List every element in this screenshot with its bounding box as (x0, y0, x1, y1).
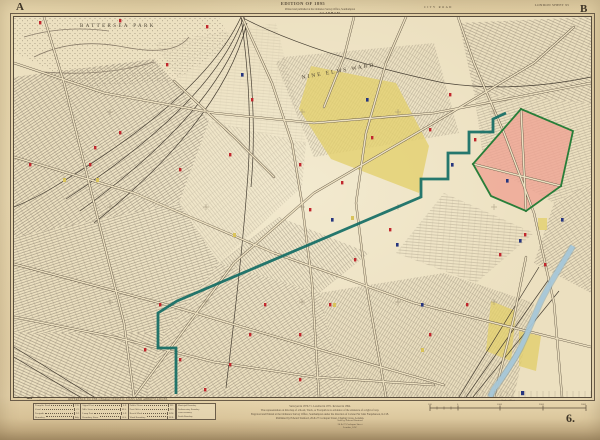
legend-code: Bdy. (73, 416, 80, 419)
map-sheet: EDITION OF 1895 Printed and published at… (0, 0, 600, 440)
legend-code: W.B. (167, 416, 174, 419)
boundary-note: Parish Boundary (177, 415, 215, 419)
corner-letter-b: B (580, 3, 587, 15)
scale-number: 500 (428, 403, 433, 406)
map-artwork: BATTERSEA PARK NINE ELMS WARD (14, 17, 591, 397)
legend-row: BoundaryBdy. (34, 415, 80, 419)
legend-group-3: Public HouseP.H. Post OfficeP.O. Bench M… (128, 404, 175, 419)
legend-leader (100, 416, 120, 417)
scale-number: 1000 (497, 403, 503, 406)
scale-bar: 500 0 1000 2000 3000 (428, 403, 588, 415)
legend-leader (144, 405, 167, 406)
legend-leader (143, 413, 166, 414)
frame-tick-ruler (14, 391, 591, 397)
publisher-line: London, S.W. (298, 426, 402, 430)
legend-leader (147, 416, 166, 417)
legend-row: Ward BoundaryW.B. (129, 415, 175, 419)
legend-group-1: Turnpike RoadT.R. CanalCl. FootpathF.P. … (34, 404, 80, 419)
legend-leader (142, 409, 167, 410)
legend-leader (94, 413, 120, 414)
district-name: CLAPHAM (300, 12, 360, 16)
edge-road-label: CITY ROAD (424, 6, 484, 9)
boundary-notes-box: Municipal Boundary Parliamentary Boundar… (176, 403, 216, 420)
legend-code: B.S. (120, 416, 126, 419)
scale-number: 2000 (539, 403, 545, 406)
scale-number: 3000 (581, 403, 587, 406)
legend-label: Boundary Stone (82, 416, 98, 419)
legend-leader (42, 409, 73, 410)
publisher-block: Sold by Edward Stanford 26 & 27 Cockspur… (298, 419, 402, 430)
corner-letter-a: A (16, 1, 24, 13)
legend-leader (94, 409, 118, 410)
legend-label: Ward Boundary (130, 416, 146, 419)
park-label: BATTERSEA PARK (80, 24, 156, 29)
legend-group-2: Signal PostS.P. Mile StoneM.S. Lamp Post… (80, 404, 127, 419)
legend-table: Turnpike RoadT.R. CanalCl. FootpathF.P. … (33, 403, 176, 420)
revision-note-line2: to December 1894. (37, 399, 81, 402)
sheet-label: LONDON SHEET 95 (523, 4, 581, 8)
legend-label: Boundary (35, 416, 45, 419)
legend-leader (45, 413, 73, 414)
legend-leader (51, 405, 72, 406)
edition-title: EDITION OF 1895 (253, 2, 353, 7)
legend-leader (95, 405, 120, 406)
legend-leader (46, 416, 72, 417)
scale-number: 0 (457, 403, 459, 406)
revision-note: Railways corrected to December 1894. (37, 396, 81, 402)
map-frame: BATTERSEA PARK NINE ELMS WARD (13, 16, 592, 398)
legend-row: Boundary StoneB.S. (81, 415, 127, 419)
